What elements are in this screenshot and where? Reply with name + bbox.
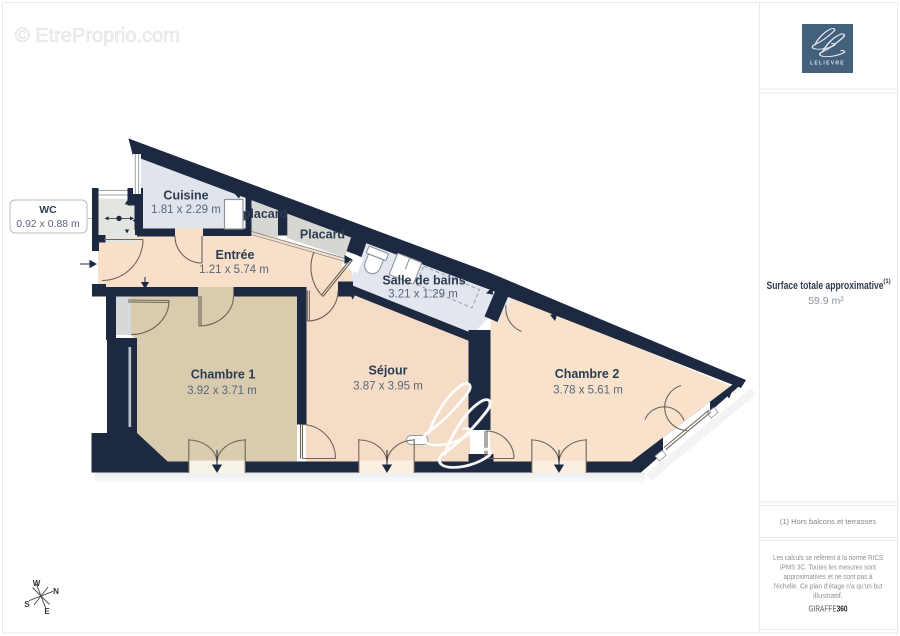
svg-text:WC: WC [39, 204, 57, 216]
svg-text:Cuisine: Cuisine [163, 189, 208, 203]
svg-text:S: S [24, 600, 30, 609]
svg-text:59.9 m²: 59.9 m² [808, 295, 844, 307]
svg-text:W: W [33, 579, 41, 588]
svg-text:Surface totale approximative: Surface totale approximative [767, 280, 884, 292]
svg-text:(1) Hors balcons et terrasses: (1) Hors balcons et terrasses [780, 517, 877, 526]
svg-text:0.92 x 0.88 m: 0.92 x 0.88 m [16, 218, 80, 230]
svg-text:1.21 x 5.74 m: 1.21 x 5.74 m [199, 264, 269, 276]
svg-text:N: N [53, 587, 59, 596]
svg-text:3.78 x 5.61 m: 3.78 x 5.61 m [553, 385, 623, 397]
svg-text:Les calculs se réfèrent à la n: Les calculs se réfèrent à la norme RICS [773, 553, 883, 562]
svg-text:GIRAFFE360: GIRAFFE360 [809, 605, 848, 614]
svg-text:3.87 x 3.95 m: 3.87 x 3.95 m [353, 381, 423, 393]
svg-text:l'échelle. Ce plan d'étage n'a: l'échelle. Ce plan d'étage n'a qu'un but [774, 582, 884, 591]
svg-text:IPMS 3C. Toutes les mesures so: IPMS 3C. Toutes les mesures sont [780, 563, 877, 572]
svg-text:1.81 x 2.29 m: 1.81 x 2.29 m [151, 204, 221, 216]
svg-text:LELIEVRE: LELIEVRE [810, 61, 845, 67]
svg-text:© EtreProprio.com: © EtreProprio.com [15, 25, 180, 47]
svg-text:3.21 x 1.29 m: 3.21 x 1.29 m [388, 289, 458, 301]
svg-text:illustratif.: illustratif. [813, 591, 843, 600]
svg-text:Salle de bains: Salle de bains [382, 274, 465, 288]
svg-text:placard: placard [243, 207, 287, 221]
svg-text:3.92 x 3.71 m: 3.92 x 3.71 m [187, 385, 257, 397]
svg-text:Chambre 2: Chambre 2 [555, 367, 620, 381]
svg-text:E: E [44, 607, 50, 616]
svg-text:Placard: Placard [300, 228, 345, 242]
svg-text:Séjour: Séjour [369, 364, 408, 378]
svg-text:(1): (1) [883, 279, 890, 285]
svg-text:Entrée: Entrée [216, 248, 255, 262]
svg-text:Chambre 1: Chambre 1 [191, 368, 256, 382]
svg-text:approximatives et ne sont pas: approximatives et ne sont pas à [784, 572, 874, 581]
